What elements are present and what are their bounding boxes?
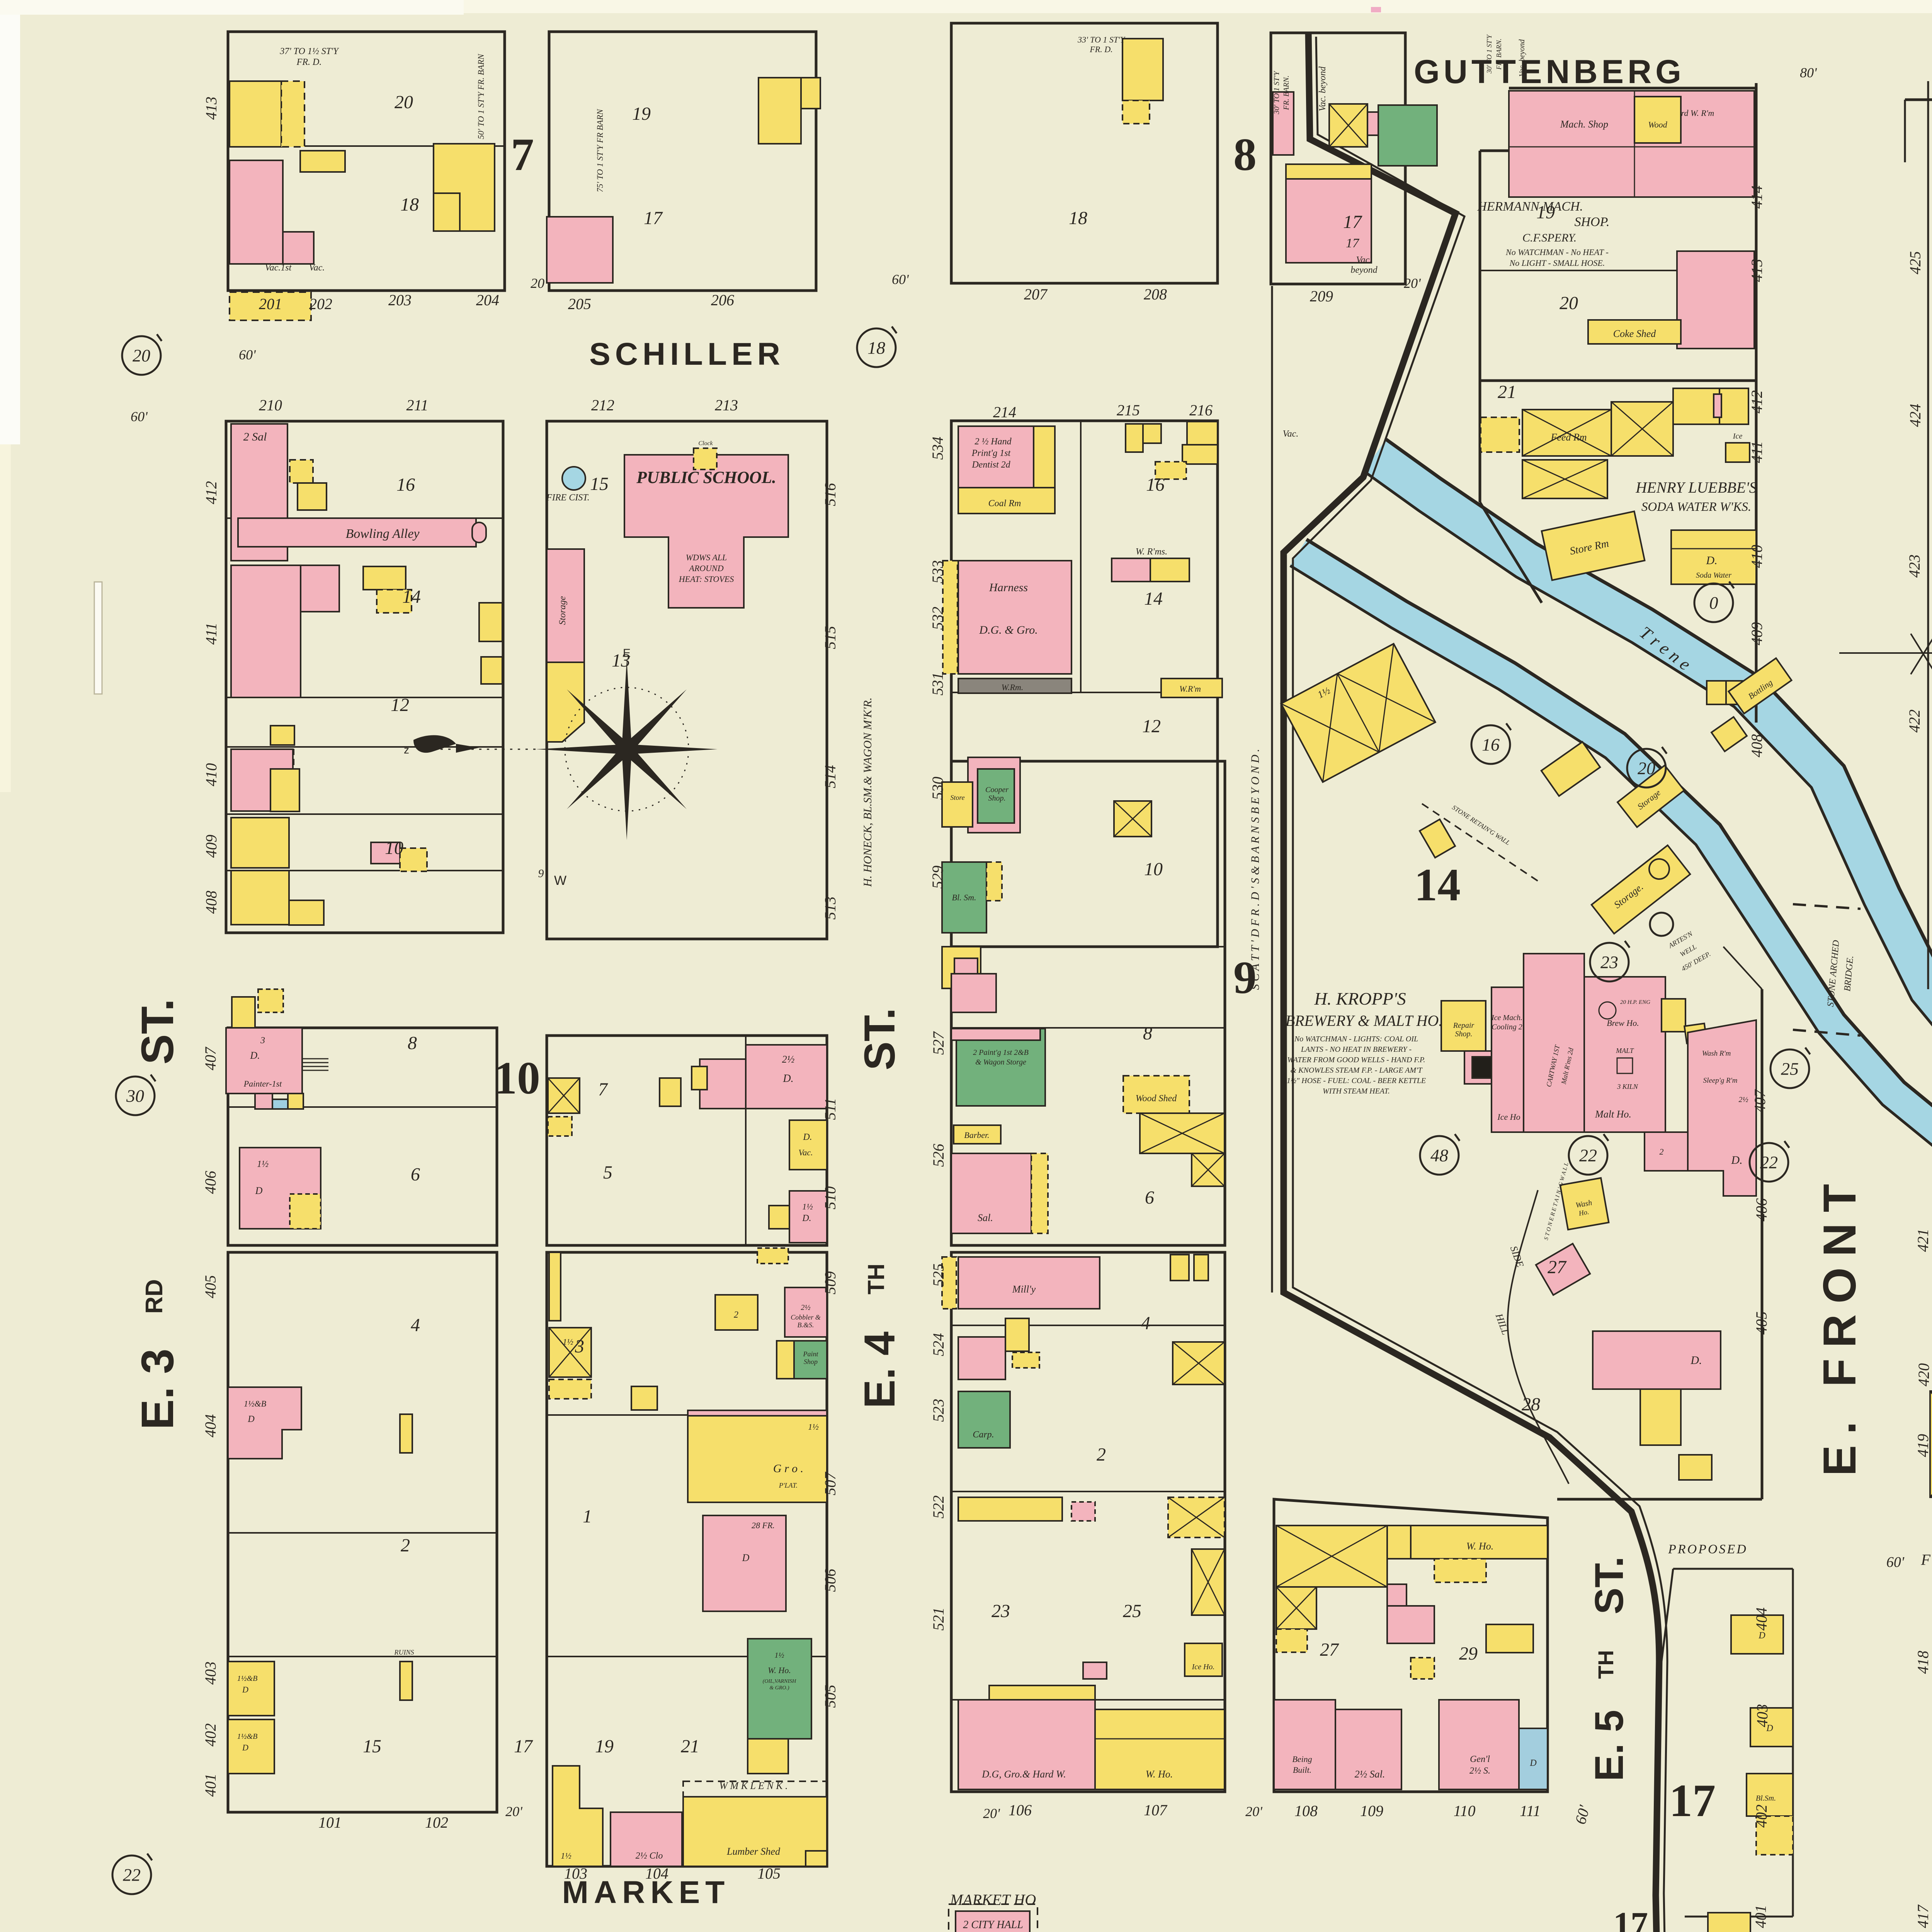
svg-text:Cooper: Cooper xyxy=(985,786,1009,794)
svg-text:507: 507 xyxy=(821,1471,839,1495)
svg-text:16: 16 xyxy=(1146,474,1165,495)
svg-text:9: 9 xyxy=(538,867,544,880)
svg-text:27: 27 xyxy=(1320,1639,1339,1660)
svg-text:2: 2 xyxy=(1660,1147,1664,1156)
svg-text:106: 106 xyxy=(1009,1801,1032,1819)
svg-text:1: 1 xyxy=(583,1506,592,1527)
svg-text:Vac. beyond: Vac. beyond xyxy=(1318,66,1328,111)
svg-text:50' TO 1 ST'Y FR. BARN: 50' TO 1 ST'Y FR. BARN xyxy=(476,53,486,139)
svg-text:407: 407 xyxy=(202,1046,219,1070)
svg-text:& KNOWLES STEAM F.P. - LARGE A: & KNOWLES STEAM F.P. - LARGE AM'T xyxy=(1291,1066,1423,1075)
svg-text:515: 515 xyxy=(821,626,839,649)
svg-text:534: 534 xyxy=(929,437,946,460)
svg-text:& GRO.): & GRO.) xyxy=(769,1685,789,1691)
svg-text:403: 403 xyxy=(202,1662,219,1685)
svg-text:20: 20 xyxy=(1560,293,1578,313)
svg-text:511: 511 xyxy=(821,1098,839,1120)
svg-text:E. 5: E. 5 xyxy=(1587,1710,1632,1781)
svg-text:E. 3: E. 3 xyxy=(132,1349,183,1430)
svg-text:111: 111 xyxy=(1520,1802,1541,1820)
svg-text:4: 4 xyxy=(411,1315,420,1335)
svg-text:414: 414 xyxy=(1748,185,1765,209)
svg-text:101: 101 xyxy=(318,1814,342,1831)
svg-text:409: 409 xyxy=(202,835,220,858)
svg-text:3: 3 xyxy=(260,1036,265,1046)
svg-text:Ice: Ice xyxy=(1733,432,1743,440)
svg-text:412: 412 xyxy=(202,481,220,504)
svg-text:P'LAT.: P'LAT. xyxy=(779,1481,798,1489)
svg-text:210: 210 xyxy=(259,396,282,414)
svg-text:HENRY LUEBBE'S: HENRY LUEBBE'S xyxy=(1635,479,1757,496)
svg-text:522: 522 xyxy=(930,1495,947,1519)
svg-text:209: 209 xyxy=(1310,287,1333,305)
svg-text:No WATCHMAN - No HEAT -: No WATCHMAN - No HEAT - xyxy=(1505,247,1609,257)
svg-text:17: 17 xyxy=(1669,1775,1716,1826)
svg-text:2½ Clo: 2½ Clo xyxy=(636,1851,663,1861)
svg-text:509: 509 xyxy=(821,1271,839,1294)
svg-text:25: 25 xyxy=(1123,1601,1141,1621)
svg-text:410: 410 xyxy=(1748,545,1765,568)
svg-text:405: 405 xyxy=(202,1275,219,1298)
svg-text:D: D xyxy=(1758,1631,1765,1641)
svg-text:14: 14 xyxy=(1144,588,1163,609)
svg-text:D.G, Gro.& Hard W.: D.G, Gro.& Hard W. xyxy=(981,1769,1066,1780)
svg-text:D.: D. xyxy=(803,1132,812,1142)
svg-text:B.&S.: B.&S. xyxy=(798,1321,814,1329)
svg-text:1½: 1½ xyxy=(257,1159,269,1169)
svg-text:37' TO 1½ ST'Y: 37' TO 1½ ST'Y xyxy=(279,46,339,56)
svg-text:206: 206 xyxy=(711,291,734,309)
svg-text:48: 48 xyxy=(1430,1146,1448,1165)
svg-text:211: 211 xyxy=(406,396,428,414)
svg-text:(OIL,VARNISH: (OIL,VARNISH xyxy=(763,1679,796,1684)
svg-text:409: 409 xyxy=(1748,622,1765,645)
svg-text:411: 411 xyxy=(202,622,220,645)
svg-text:29: 29 xyxy=(1459,1643,1478,1664)
svg-text:W.R'm: W.R'm xyxy=(1179,684,1201,694)
svg-text:530: 530 xyxy=(929,777,946,800)
svg-text:Bl. Sm.: Bl. Sm. xyxy=(952,893,976,902)
svg-text:418: 418 xyxy=(1914,1651,1932,1674)
svg-text:506: 506 xyxy=(821,1569,839,1592)
svg-text:Vac.: Vac. xyxy=(309,263,325,273)
svg-text:60': 60' xyxy=(892,272,909,287)
svg-text:SHOP.: SHOP. xyxy=(1575,215,1610,229)
svg-text:Sal.: Sal. xyxy=(978,1212,993,1223)
svg-text:2 Paint'g 1st 2&B: 2 Paint'g 1st 2&B xyxy=(973,1048,1029,1057)
svg-text:412: 412 xyxy=(1748,390,1765,413)
svg-text:W. R'ms.: W. R'ms. xyxy=(1136,547,1167,557)
svg-text:406: 406 xyxy=(202,1171,219,1194)
svg-text:20': 20' xyxy=(1245,1804,1263,1819)
svg-text:Sleep'g R'm: Sleep'g R'm xyxy=(1703,1077,1738,1085)
svg-text:1½: 1½ xyxy=(563,1337,573,1347)
svg-text:408: 408 xyxy=(202,891,220,914)
svg-text:75' TO 1 ST'Y FR BARN: 75' TO 1 ST'Y FR BARN xyxy=(595,109,605,192)
svg-text:Malt Ho.: Malt Ho. xyxy=(1595,1109,1631,1120)
svg-text:FRANKLIN: FRANKLIN xyxy=(1921,1551,1932,1568)
svg-text:423: 423 xyxy=(1906,554,1923,578)
svg-text:420: 420 xyxy=(1915,1363,1932,1386)
svg-text:17: 17 xyxy=(1613,1905,1648,1932)
svg-text:213: 213 xyxy=(715,396,738,414)
svg-text:8: 8 xyxy=(1233,129,1257,180)
svg-text:2½: 2½ xyxy=(801,1303,811,1312)
svg-text:E. FRONT: E. FRONT xyxy=(1814,1173,1866,1476)
svg-text:Bl.Sm.: Bl.Sm. xyxy=(1756,1794,1776,1803)
svg-text:411: 411 xyxy=(1748,441,1765,463)
svg-text:GUTTENBERG: GUTTENBERG xyxy=(1414,53,1685,90)
svg-text:Clock: Clock xyxy=(698,440,713,447)
svg-text:D.: D. xyxy=(250,1050,260,1061)
svg-text:Ice Ho: Ice Ho xyxy=(1497,1112,1520,1122)
svg-text:SCHILLER: SCHILLER xyxy=(589,337,785,372)
svg-text:60': 60' xyxy=(1886,1554,1905,1570)
svg-text:WITH STEAM HEAT.: WITH STEAM HEAT. xyxy=(1323,1087,1390,1095)
svg-text:8: 8 xyxy=(1143,1023,1152,1044)
svg-text:14: 14 xyxy=(402,587,421,607)
svg-text:Wood Shed: Wood Shed xyxy=(1136,1094,1177,1104)
svg-text:207: 207 xyxy=(1024,286,1048,303)
svg-text:Vac.1st: Vac.1st xyxy=(265,263,292,273)
svg-text:1½: 1½ xyxy=(808,1422,819,1432)
svg-text:204: 204 xyxy=(476,291,499,309)
svg-text:H. KROPP'S: H. KROPP'S xyxy=(1314,989,1406,1009)
svg-text:419: 419 xyxy=(1914,1434,1932,1457)
svg-text:532: 532 xyxy=(929,607,946,630)
svg-text:H. HONECK, BL.SM.& WAGON M'K'R: H. HONECK, BL.SM.& WAGON M'K'R. xyxy=(861,697,874,887)
svg-text:102: 102 xyxy=(425,1814,448,1831)
svg-text:6: 6 xyxy=(411,1164,420,1185)
svg-text:401: 401 xyxy=(1752,1905,1769,1928)
svg-text:0: 0 xyxy=(1709,593,1718,613)
svg-text:D.: D. xyxy=(782,1073,793,1085)
svg-text:SODA WATER W'KS.: SODA WATER W'KS. xyxy=(1641,500,1751,514)
svg-text:Shop: Shop xyxy=(804,1358,818,1366)
svg-text:WATER FROM GOOD WELLS - HAND F: WATER FROM GOOD WELLS - HAND F.P. xyxy=(1287,1056,1425,1064)
svg-text:8: 8 xyxy=(408,1033,417,1053)
svg-text:403: 403 xyxy=(1753,1704,1771,1727)
svg-text:22: 22 xyxy=(1760,1153,1778,1172)
svg-text:513: 513 xyxy=(821,896,839,920)
svg-text:Wash R'm: Wash R'm xyxy=(1702,1049,1731,1058)
svg-text:30' TO 1 ST'Y: 30' TO 1 ST'Y xyxy=(1485,34,1493,74)
svg-text:23: 23 xyxy=(1600,952,1618,972)
svg-text:2½ Sal.: 2½ Sal. xyxy=(1355,1769,1385,1780)
svg-text:19: 19 xyxy=(595,1736,614,1757)
svg-text:Vac.: Vac. xyxy=(1283,429,1299,439)
svg-text:13: 13 xyxy=(612,650,630,671)
svg-text:413: 413 xyxy=(202,97,220,120)
svg-text:529: 529 xyxy=(929,866,946,889)
svg-text:TH: TH xyxy=(863,1264,889,1294)
svg-text:HEAT: STOVES: HEAT: STOVES xyxy=(679,574,734,584)
svg-text:Shop.: Shop. xyxy=(1455,1030,1473,1038)
svg-text:531: 531 xyxy=(929,672,946,696)
svg-text:19: 19 xyxy=(632,104,651,124)
svg-text:405: 405 xyxy=(1753,1311,1770,1335)
svg-text:Store: Store xyxy=(950,794,964,801)
svg-text:C.F.SPERY.: C.F.SPERY. xyxy=(1522,231,1577,244)
svg-text:15: 15 xyxy=(590,474,609,494)
svg-text:424: 424 xyxy=(1906,404,1924,427)
svg-text:1½: 1½ xyxy=(802,1202,813,1211)
svg-text:MARKET HO: MARKET HO xyxy=(950,1891,1036,1908)
svg-text:205: 205 xyxy=(568,295,591,313)
svg-text:D: D xyxy=(742,1552,750,1563)
svg-text:20 H.P. ENG: 20 H.P. ENG xyxy=(1620,999,1650,1005)
svg-text:2½ S.: 2½ S. xyxy=(1469,1766,1490,1776)
svg-text:Wood: Wood xyxy=(1648,120,1667,129)
svg-text:407: 407 xyxy=(1751,1089,1769,1113)
svg-text:WDWS ALL: WDWS ALL xyxy=(686,553,727,562)
svg-text:17: 17 xyxy=(514,1736,533,1757)
svg-text:417: 417 xyxy=(1914,1904,1932,1928)
svg-text:1½: 1½ xyxy=(561,1851,571,1861)
svg-text:521: 521 xyxy=(930,1607,947,1631)
svg-text:12: 12 xyxy=(1142,716,1161,736)
svg-text:Feed Rm: Feed Rm xyxy=(1550,432,1587,443)
svg-text:1½&B: 1½&B xyxy=(237,1674,258,1683)
svg-text:Being: Being xyxy=(1292,1754,1312,1764)
svg-text:FR. D.: FR. D. xyxy=(1089,44,1112,54)
svg-text:526: 526 xyxy=(930,1144,947,1167)
svg-text:G r o .: G r o . xyxy=(773,1462,803,1475)
svg-text:23: 23 xyxy=(992,1601,1010,1621)
svg-text:W: W xyxy=(554,873,566,888)
svg-text:Bowling Alley: Bowling Alley xyxy=(345,527,420,541)
svg-text:Vac. beyond: Vac. beyond xyxy=(1518,39,1526,77)
svg-text:Repair: Repair xyxy=(1453,1021,1475,1030)
svg-text:30: 30 xyxy=(126,1086,144,1106)
svg-text:16: 16 xyxy=(1482,735,1500,755)
svg-text:D.: D. xyxy=(1706,554,1717,567)
svg-text:22: 22 xyxy=(123,1865,141,1885)
svg-text:5: 5 xyxy=(603,1162,612,1183)
svg-text:18: 18 xyxy=(867,338,885,358)
svg-text:425: 425 xyxy=(1906,251,1924,274)
svg-text:2: 2 xyxy=(1097,1444,1106,1465)
svg-text:1½&B: 1½&B xyxy=(244,1399,266,1408)
svg-text:216: 216 xyxy=(1189,401,1213,419)
svg-text:D: D xyxy=(247,1414,254,1424)
svg-text:W. Ho.: W. Ho. xyxy=(768,1665,791,1675)
svg-text:505: 505 xyxy=(821,1685,839,1708)
svg-text:RUINS: RUINS xyxy=(394,1648,414,1656)
svg-text:Carp.: Carp. xyxy=(973,1430,994,1440)
svg-text:Soda Water: Soda Water xyxy=(1696,571,1731,580)
svg-text:Barber.: Barber. xyxy=(964,1130,989,1140)
svg-text:E. 4: E. 4 xyxy=(855,1332,904,1408)
svg-text:107: 107 xyxy=(1144,1801,1168,1819)
svg-text:3 KILN: 3 KILN xyxy=(1617,1083,1638,1090)
svg-text:Shop.: Shop. xyxy=(988,794,1006,803)
svg-text:Built.: Built. xyxy=(1293,1765,1311,1775)
svg-text:TH: TH xyxy=(1594,1650,1618,1679)
svg-text:Cobbler &: Cobbler & xyxy=(791,1313,821,1321)
svg-text:Vac.: Vac. xyxy=(798,1148,813,1157)
svg-text:No LIGHT - SMALL HOSE.: No LIGHT - SMALL HOSE. xyxy=(1509,258,1605,268)
svg-text:28: 28 xyxy=(1522,1394,1540,1415)
svg-text:D: D xyxy=(255,1185,263,1196)
svg-text:30' TO 1 ST'Y: 30' TO 1 ST'Y xyxy=(1272,71,1281,115)
svg-text:110: 110 xyxy=(1453,1802,1475,1820)
svg-text:Dentist 2d: Dentist 2d xyxy=(971,460,1010,470)
svg-text:422: 422 xyxy=(1906,709,1923,733)
svg-text:21: 21 xyxy=(1498,382,1516,402)
svg-text:D: D xyxy=(242,1685,248,1694)
svg-text:9: 9 xyxy=(1233,952,1257,1003)
svg-text:z: z xyxy=(404,744,409,756)
svg-text:Brew Ho.: Brew Ho. xyxy=(1607,1018,1639,1028)
svg-text:FR. BARN.: FR. BARN. xyxy=(1495,39,1503,70)
svg-text:2½: 2½ xyxy=(1739,1095,1748,1104)
svg-text:W. Ho.: W. Ho. xyxy=(1146,1769,1173,1780)
svg-text:BREWERY & MALT HO.: BREWERY & MALT HO. xyxy=(1286,1012,1443,1029)
svg-text:408: 408 xyxy=(1748,734,1765,757)
svg-text:203: 203 xyxy=(388,291,412,309)
svg-text:LANTS - NO HEAT IN BREWERY -: LANTS - NO HEAT IN BREWERY - xyxy=(1301,1045,1412,1054)
svg-text:18: 18 xyxy=(1069,208,1087,228)
svg-text:Coke Shed: Coke Shed xyxy=(1613,328,1656,339)
svg-text:524: 524 xyxy=(930,1333,947,1356)
svg-text:402: 402 xyxy=(1753,1804,1770,1828)
svg-text:21: 21 xyxy=(681,1736,699,1757)
svg-text:2 ½ Hand: 2 ½ Hand xyxy=(975,437,1012,447)
svg-text:2 Sal: 2 Sal xyxy=(243,430,267,443)
svg-text:404: 404 xyxy=(1753,1607,1770,1631)
svg-text:Cooling 2: Cooling 2 xyxy=(1492,1023,1522,1031)
svg-text:523: 523 xyxy=(930,1399,947,1422)
svg-text:20: 20 xyxy=(133,346,150,366)
svg-text:HERMANN MACH.: HERMANN MACH. xyxy=(1477,199,1583,214)
svg-text:105: 105 xyxy=(757,1865,781,1882)
svg-text:108: 108 xyxy=(1294,1802,1318,1820)
svg-text:PROPOSED: PROPOSED xyxy=(1668,1542,1748,1556)
svg-text:PUBLIC SCHOOL.: PUBLIC SCHOOL. xyxy=(636,468,776,487)
svg-text:1½&B: 1½&B xyxy=(237,1732,258,1741)
svg-text:533: 533 xyxy=(929,560,946,583)
svg-text:10: 10 xyxy=(385,838,403,858)
svg-text:D.: D. xyxy=(802,1213,811,1223)
svg-text:401: 401 xyxy=(202,1774,219,1797)
svg-text:Harness: Harness xyxy=(989,581,1028,594)
svg-text:RD: RD xyxy=(141,1279,168,1314)
svg-text:20': 20' xyxy=(531,276,548,291)
svg-text:20: 20 xyxy=(395,92,413,112)
svg-text:MALT: MALT xyxy=(1616,1047,1634,1054)
svg-text:15: 15 xyxy=(363,1736,381,1757)
svg-text:D: D xyxy=(1529,1758,1536,1768)
svg-text:2: 2 xyxy=(401,1535,410,1556)
svg-text:20: 20 xyxy=(1638,759,1655,778)
svg-text:Mill'y: Mill'y xyxy=(1012,1284,1036,1295)
svg-text:104: 104 xyxy=(645,1865,668,1882)
svg-text:12: 12 xyxy=(391,695,409,715)
svg-text:25: 25 xyxy=(1781,1059,1799,1079)
svg-text:33' TO 1 ST'Y: 33' TO 1 ST'Y xyxy=(1077,35,1126,44)
svg-text:D.: D. xyxy=(1690,1354,1702,1367)
svg-text:D: D xyxy=(242,1743,248,1752)
svg-text:2 CITY HALL: 2 CITY HALL xyxy=(963,1919,1023,1931)
svg-text:516: 516 xyxy=(821,483,839,506)
svg-text:215: 215 xyxy=(1117,401,1140,419)
svg-text:W. Ho.: W. Ho. xyxy=(1466,1541,1494,1552)
svg-text:212: 212 xyxy=(591,396,614,414)
svg-text:525: 525 xyxy=(930,1264,947,1287)
svg-text:406: 406 xyxy=(1753,1198,1770,1221)
svg-text:22: 22 xyxy=(1579,1146,1597,1165)
svg-text:28 FR.: 28 FR. xyxy=(752,1520,775,1530)
svg-text:20': 20' xyxy=(505,1804,523,1819)
svg-text:6: 6 xyxy=(1145,1187,1154,1208)
svg-text:Paint: Paint xyxy=(803,1350,819,1358)
svg-text:10: 10 xyxy=(1144,859,1163,879)
svg-text:beyond: beyond xyxy=(1350,265,1378,275)
svg-text:413: 413 xyxy=(1748,259,1765,282)
svg-text:60': 60' xyxy=(131,409,148,424)
svg-text:AROUND: AROUND xyxy=(688,563,723,573)
svg-text:7: 7 xyxy=(511,129,534,180)
svg-text:FIRE CIST.: FIRE CIST. xyxy=(546,493,590,503)
svg-text:& Wagon Storge: & Wagon Storge xyxy=(975,1058,1026,1066)
svg-text:527: 527 xyxy=(930,1031,947,1055)
svg-text:421: 421 xyxy=(1914,1229,1932,1252)
svg-text:D.G. & Gro.: D.G. & Gro. xyxy=(979,624,1037,636)
svg-text:Mach. Shop: Mach. Shop xyxy=(1560,119,1608,130)
svg-text:Coal Rm: Coal Rm xyxy=(988,498,1021,509)
svg-text:Ice Ho.: Ice Ho. xyxy=(1192,1663,1215,1671)
svg-text:Storage: Storage xyxy=(558,596,568,625)
svg-text:D.: D. xyxy=(1731,1154,1742,1167)
svg-text:Ice Mach.: Ice Mach. xyxy=(1491,1014,1522,1022)
svg-text:27: 27 xyxy=(1548,1257,1567,1277)
svg-text:ST.: ST. xyxy=(1587,1556,1632,1614)
svg-text:16: 16 xyxy=(396,474,415,495)
svg-text:17: 17 xyxy=(644,208,663,228)
svg-text:103: 103 xyxy=(564,1865,587,1882)
svg-text:4: 4 xyxy=(1141,1313,1150,1333)
svg-text:202: 202 xyxy=(309,295,332,313)
svg-text:1½" HOSE - FUEL: COAL - BEER K: 1½" HOSE - FUEL: COAL - BEER KETTLE xyxy=(1287,1077,1426,1085)
svg-text:No WATCHMAN - LIGHTS: COAL OIL: No WATCHMAN - LIGHTS: COAL OIL xyxy=(1294,1035,1418,1043)
svg-text:514: 514 xyxy=(821,765,839,788)
svg-text:410: 410 xyxy=(202,763,220,786)
svg-text:14: 14 xyxy=(1414,859,1461,910)
svg-text:Gen'l: Gen'l xyxy=(1470,1754,1490,1764)
svg-text:60': 60' xyxy=(239,347,256,362)
svg-text:18: 18 xyxy=(400,194,419,215)
svg-text:208: 208 xyxy=(1144,286,1167,303)
svg-text:402: 402 xyxy=(202,1723,219,1747)
svg-text:FR. BARN.: FR. BARN. xyxy=(1282,75,1291,110)
svg-text:Lumber Shed: Lumber Shed xyxy=(726,1846,781,1857)
svg-text:ST.: ST. xyxy=(132,999,183,1065)
svg-text:W.Rm.: W.Rm. xyxy=(1002,682,1024,692)
svg-text:17: 17 xyxy=(1346,236,1360,250)
svg-text:201: 201 xyxy=(259,295,282,313)
svg-text:2½: 2½ xyxy=(782,1054,795,1065)
svg-text:80': 80' xyxy=(1800,65,1817,80)
svg-text:20': 20' xyxy=(1404,276,1421,291)
svg-text:510: 510 xyxy=(821,1186,839,1209)
svg-text:109: 109 xyxy=(1360,1802,1383,1820)
svg-text:7: 7 xyxy=(598,1079,608,1100)
svg-text:Print'g 1st: Print'g 1st xyxy=(971,448,1011,458)
svg-text:10: 10 xyxy=(494,1052,540,1104)
svg-text:2: 2 xyxy=(734,1310,738,1320)
svg-text:Vac.: Vac. xyxy=(1356,255,1372,265)
